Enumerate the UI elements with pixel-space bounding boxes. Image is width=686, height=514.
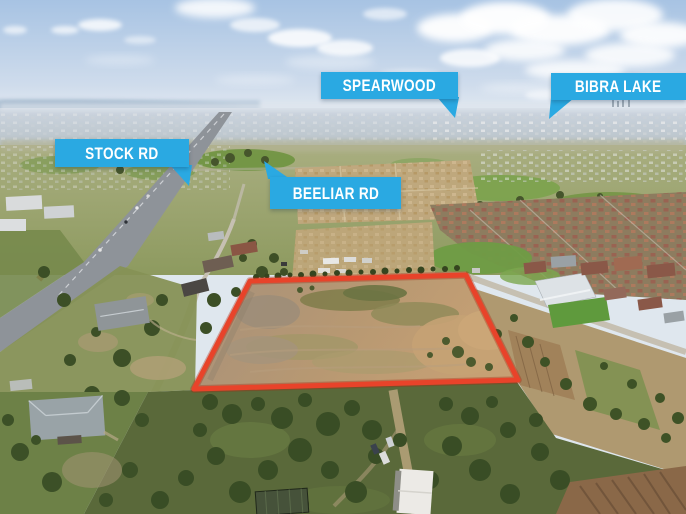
callout-spearwood: SPEARWOOD xyxy=(321,72,458,99)
white-shed xyxy=(393,469,434,514)
callout-bibra-lake-label: BIBRA LAKE xyxy=(575,78,662,95)
callout-spearwood-label: SPEARWOOD xyxy=(343,77,436,94)
property-site xyxy=(194,257,518,389)
callout-beeliar-rd: BEELIAR RD xyxy=(270,177,401,209)
callout-stock-rd-label: STOCK RD xyxy=(85,145,158,162)
greenhouse xyxy=(255,488,309,514)
callout-bibra-lake: BIBRA LAKE xyxy=(551,73,686,100)
callout-stock-rd: STOCK RD xyxy=(55,139,189,167)
callout-beeliar-rd-label: BEELIAR RD xyxy=(292,185,378,202)
aerial-property-photo: SPEARWOOD BIBRA LAKE STOCK RD BEELIAR RD xyxy=(0,0,686,514)
